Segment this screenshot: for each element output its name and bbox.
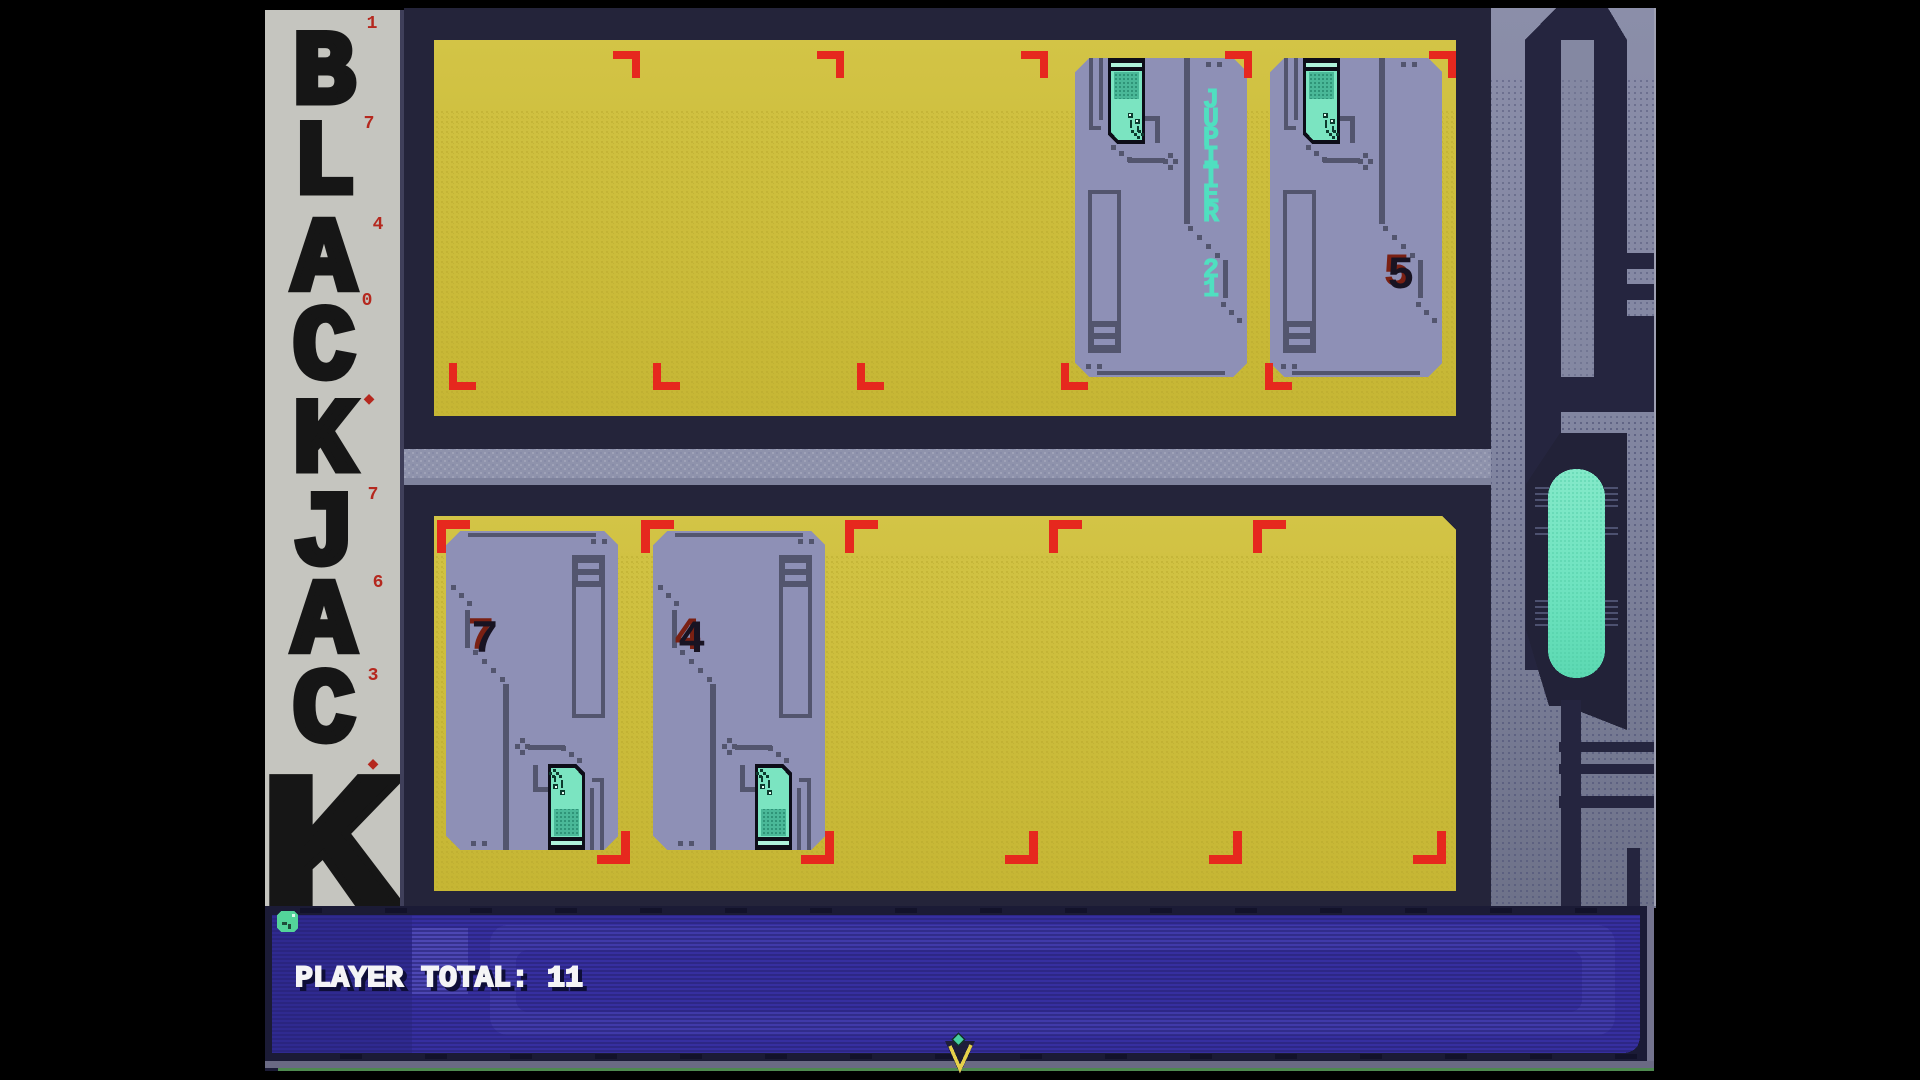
- svg-text:6: 6: [373, 573, 384, 593]
- svg-text:3: 3: [368, 666, 379, 686]
- svg-text:5: 5: [1387, 250, 1415, 302]
- svg-text:7: 7: [364, 114, 375, 134]
- svg-text:PLAYER TOTAL: 11: PLAYER TOTAL: 11: [295, 962, 583, 996]
- svg-text:4: 4: [678, 614, 706, 666]
- svg-text:1: 1: [367, 14, 378, 34]
- svg-text:1: 1: [1203, 275, 1219, 305]
- svg-text:◆: ◆: [364, 390, 375, 410]
- svg-text:4: 4: [373, 215, 384, 235]
- svg-text:0: 0: [362, 291, 373, 311]
- svg-text:7: 7: [368, 485, 379, 505]
- svg-text:◆: ◆: [368, 755, 379, 775]
- svg-text:R: R: [1203, 200, 1220, 230]
- svg-text:7: 7: [471, 614, 499, 666]
